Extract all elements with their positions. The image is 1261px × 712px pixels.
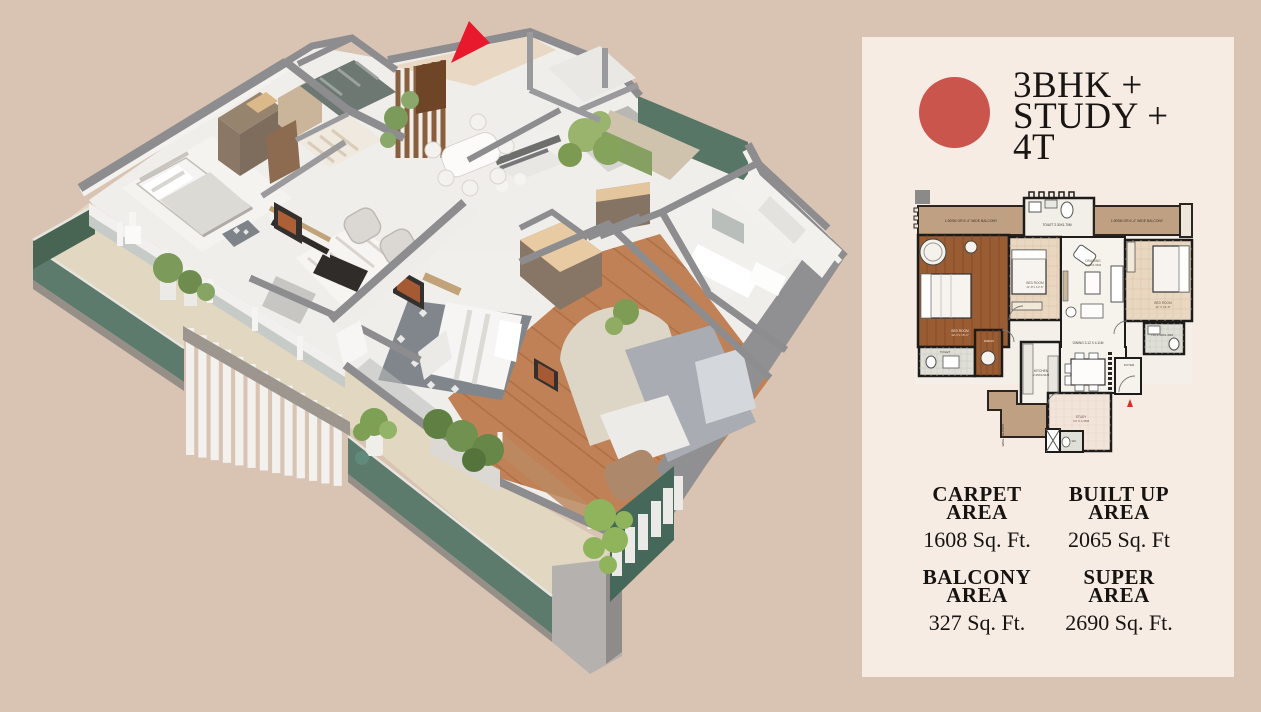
svg-text:FOYER: FOYER xyxy=(1124,363,1135,367)
svg-text:12' X 10'-6": 12' X 10'-6" xyxy=(1155,305,1170,309)
svg-text:11'-8"x 10'-6": 11'-8"x 10'-6" xyxy=(1026,285,1043,289)
svg-text:TOILET: TOILET xyxy=(940,350,951,354)
svg-text:WC: WC xyxy=(1072,439,1077,443)
svg-text:3.96X4.96M: 3.96X4.96M xyxy=(1085,263,1102,267)
svg-text:1.90SM OR 6'-4" WIDE BALCONY: 1.90SM OR 6'-4" WIDE BALCONY xyxy=(945,219,998,223)
svg-text:TOILET 2.30X1.70M: TOILET 2.30X1.70M xyxy=(1042,223,1071,227)
svg-text:3.0 X 3.35M: 3.0 X 3.35M xyxy=(1073,419,1090,423)
svg-text:12'-1"x 15'-1": 12'-1"x 15'-1" xyxy=(951,333,969,337)
svg-text:DINING 3.12 X 4.11M: DINING 3.12 X 4.11M xyxy=(1073,341,1104,345)
svg-text:TOI 2.30X1.40M: TOI 2.30X1.40M xyxy=(1151,333,1173,337)
svg-text:WIDE BALCONY: WIDE BALCONY xyxy=(1001,423,1005,446)
svg-text:2.45X3.91M: 2.45X3.91M xyxy=(1033,373,1050,377)
svg-text:1.90SM OR 6'-4" WIDE BALCONY: 1.90SM OR 6'-4" WIDE BALCONY xyxy=(1111,219,1164,223)
svg-text:DRESS: DRESS xyxy=(984,339,994,343)
